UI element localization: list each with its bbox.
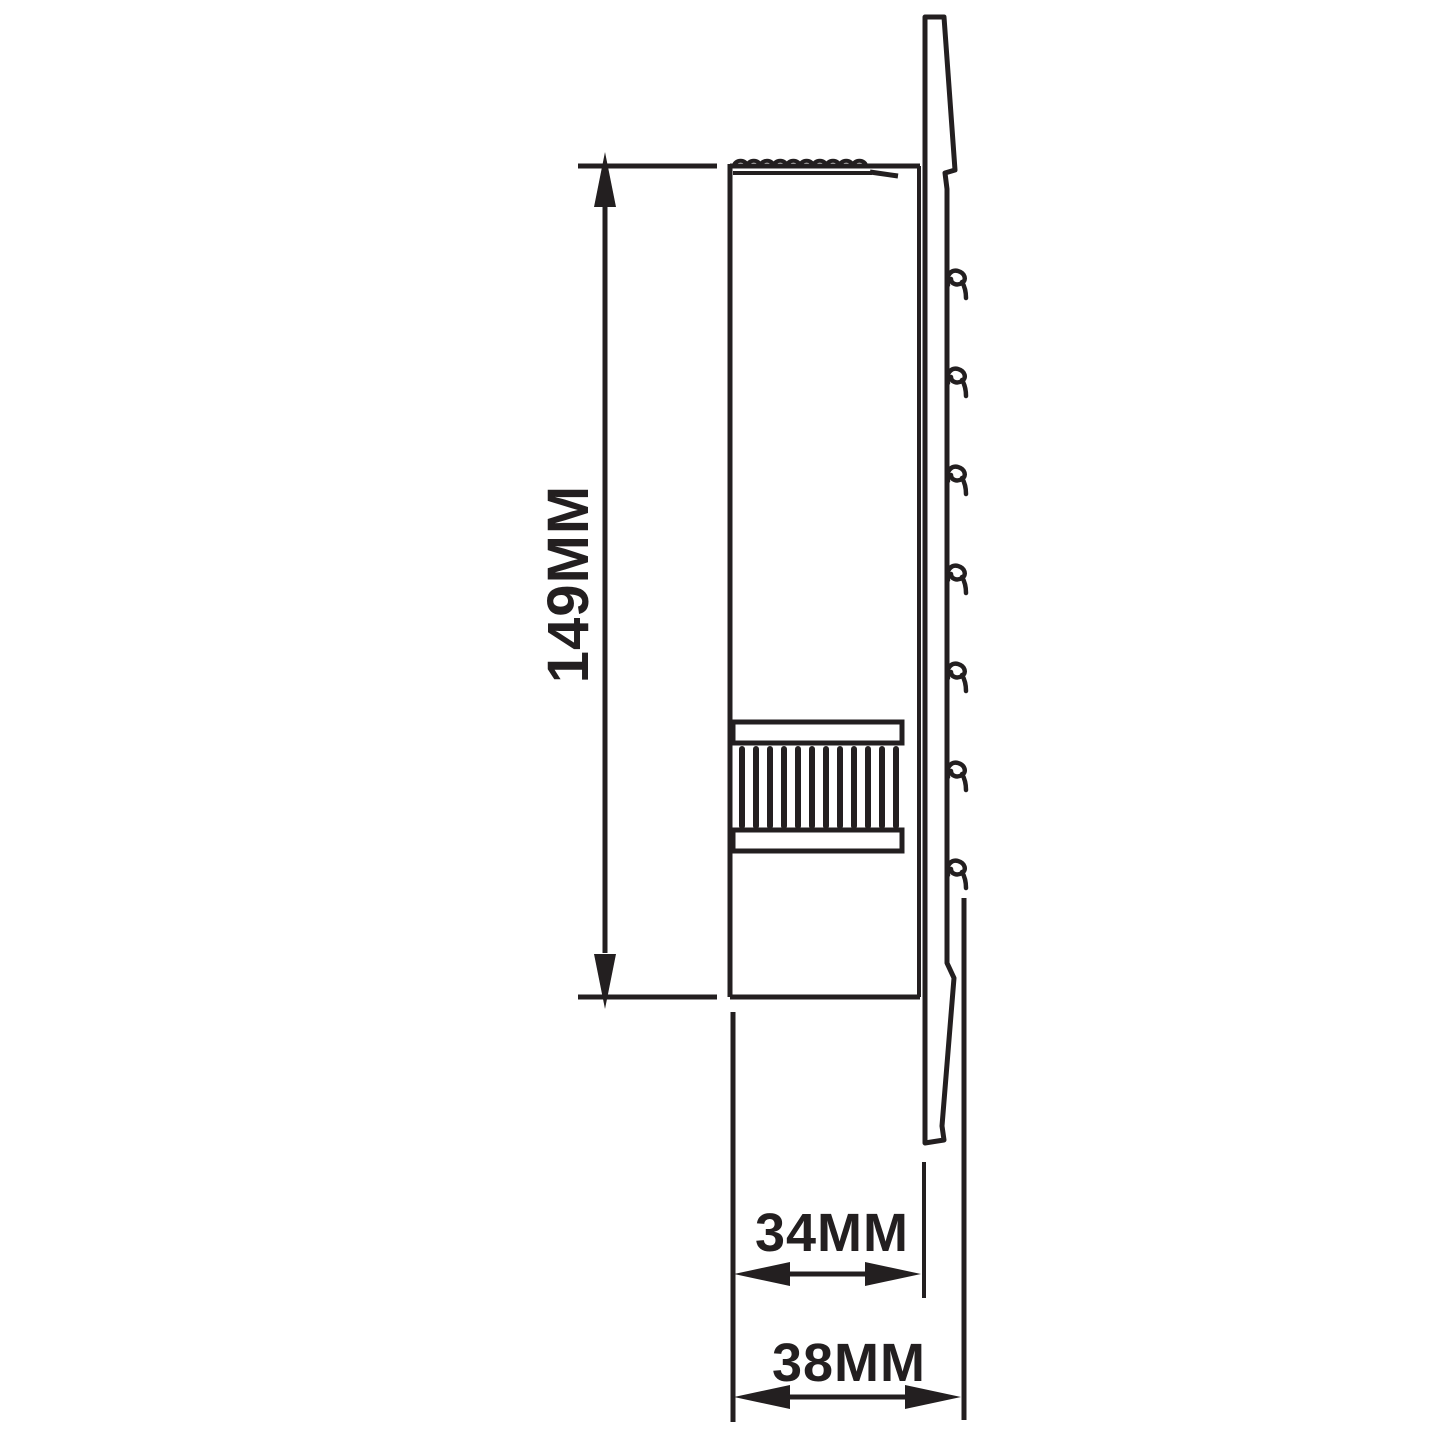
duct-body (730, 161, 920, 997)
retention-hook (947, 763, 966, 790)
dimension-label-34mm: 34MM (755, 1203, 909, 1263)
ribbed-band-top-bar (733, 722, 902, 743)
dimension-149mm: 149MM (536, 152, 717, 1009)
retention-hook (947, 861, 966, 888)
technical-drawing: 149MM 34MM 38MM (0, 0, 1445, 1445)
retention-hook (947, 271, 966, 298)
retention-hooks (947, 271, 966, 888)
dimension-34mm: 34MM (734, 1162, 924, 1298)
serration-inner-step (870, 172, 898, 176)
flange-outline (925, 17, 955, 1143)
mounting-flange (925, 17, 966, 1143)
diagram-canvas: 149MM 34MM 38MM (0, 0, 1445, 1445)
retention-hook (947, 467, 966, 494)
ribbed-band-ribs (742, 749, 896, 826)
arrowhead-left (734, 1262, 790, 1286)
dimension-label-38mm: 38MM (772, 1333, 926, 1393)
ribbed-band (733, 722, 902, 851)
retention-hook (947, 566, 966, 593)
arrowhead-up (594, 152, 616, 207)
arrowhead-down (594, 954, 616, 1009)
retention-hook (947, 369, 966, 396)
retention-hook (947, 664, 966, 691)
arrowhead-right (865, 1262, 921, 1286)
dimension-label-149mm: 149MM (536, 485, 601, 683)
ribbed-band-bottom-bar (733, 830, 902, 851)
